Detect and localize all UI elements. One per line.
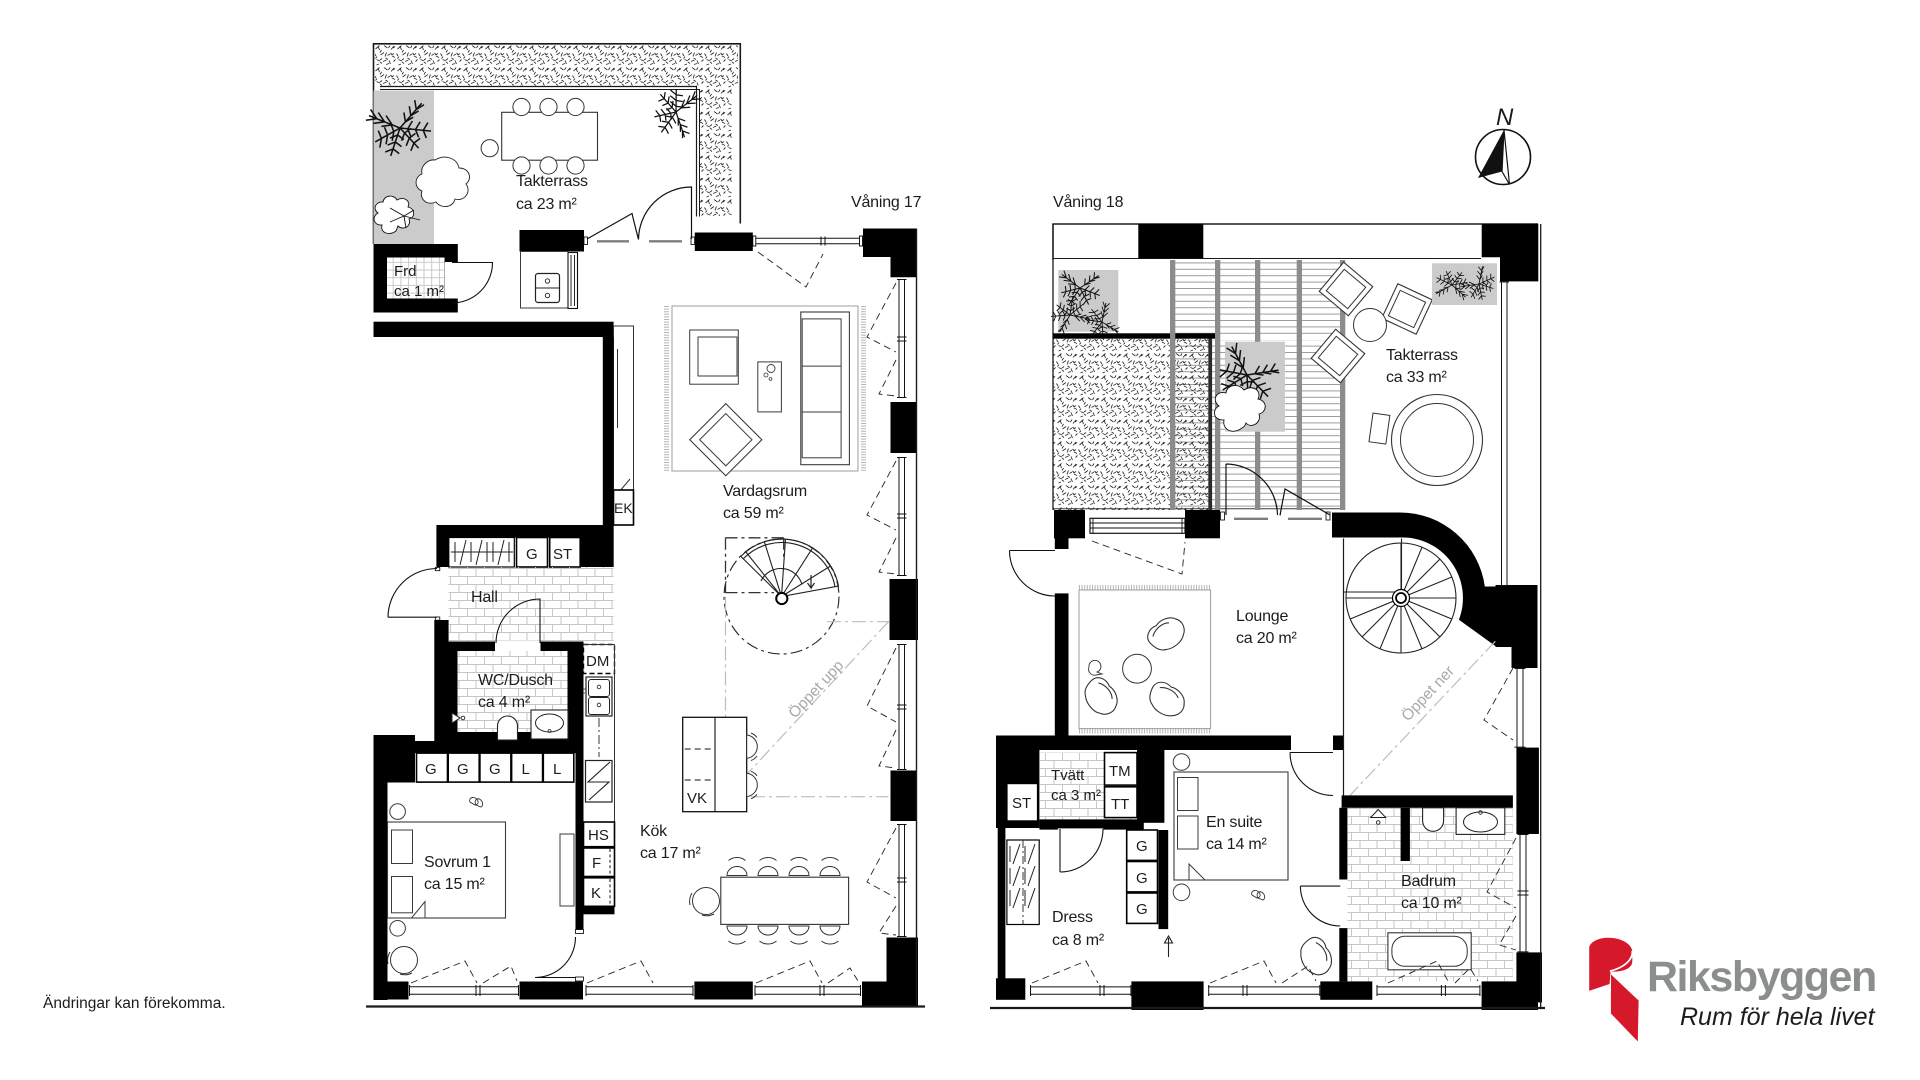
svg-text:Dress: Dress	[1052, 909, 1093, 926]
svg-text:L: L	[553, 761, 561, 778]
svg-text:Tvätt: Tvätt	[1051, 767, 1085, 784]
svg-text:EK: EK	[614, 500, 633, 516]
svg-text:ca 15 m²: ca 15 m²	[424, 876, 486, 893]
svg-text:K: K	[591, 885, 601, 902]
svg-text:Hall: Hall	[471, 589, 498, 606]
svg-text:Våning 17: Våning 17	[851, 193, 922, 211]
svg-text:G: G	[489, 761, 501, 778]
svg-text:Rum för hela livet: Rum för hela livet	[1680, 1003, 1876, 1031]
svg-text:ca 1 m²: ca 1 m²	[394, 283, 444, 300]
svg-text:Takterrass: Takterrass	[1386, 347, 1458, 364]
svg-text:ca 3 m²: ca 3 m²	[1051, 787, 1101, 804]
svg-text:TT: TT	[1111, 796, 1129, 813]
svg-text:ca 4 m²: ca 4 m²	[478, 694, 531, 711]
svg-text:G: G	[1136, 901, 1148, 918]
svg-text:N: N	[1496, 104, 1514, 131]
svg-text:ca 59 m²: ca 59 m²	[723, 505, 785, 522]
svg-text:WC/Dusch: WC/Dusch	[478, 672, 553, 689]
svg-text:HS: HS	[588, 827, 609, 844]
svg-text:VK: VK	[687, 790, 707, 807]
svg-text:Badrum: Badrum	[1401, 873, 1456, 890]
svg-text:ca 20 m²: ca 20 m²	[1236, 630, 1298, 647]
svg-text:G: G	[457, 761, 469, 778]
svg-text:F: F	[592, 855, 601, 872]
svg-text:Våning 18: Våning 18	[1053, 193, 1124, 211]
svg-text:ca 14 m²: ca 14 m²	[1206, 836, 1268, 853]
svg-text:ca 17 m²: ca 17 m²	[640, 845, 702, 862]
svg-text:G: G	[425, 761, 437, 778]
svg-text:ca 23 m²: ca 23 m²	[516, 196, 578, 213]
svg-text:L: L	[522, 761, 530, 778]
svg-text:Takterrass: Takterrass	[516, 173, 588, 190]
svg-text:Sovrum 1: Sovrum 1	[424, 854, 491, 871]
svg-text:Frd: Frd	[394, 263, 417, 280]
svg-text:Riksbyggen: Riksbyggen	[1647, 953, 1876, 1001]
svg-text:Ändringar kan förekomma.: Ändringar kan förekomma.	[43, 995, 226, 1012]
svg-text:Lounge: Lounge	[1236, 608, 1288, 625]
svg-text:G: G	[1136, 870, 1148, 887]
svg-text:G: G	[1136, 838, 1148, 855]
svg-text:G: G	[526, 546, 538, 563]
svg-text:TM: TM	[1109, 763, 1131, 780]
svg-text:ST: ST	[1012, 795, 1031, 812]
svg-text:Kök: Kök	[640, 823, 668, 840]
svg-text:ca 33 m²: ca 33 m²	[1386, 369, 1448, 386]
svg-text:Vardagsrum: Vardagsrum	[723, 483, 807, 500]
svg-text:En suite: En suite	[1206, 814, 1263, 831]
svg-text:DM: DM	[586, 653, 609, 670]
svg-text:ca 10 m²: ca 10 m²	[1401, 895, 1463, 912]
svg-text:ST: ST	[553, 546, 572, 563]
svg-text:ca 8 m²: ca 8 m²	[1052, 932, 1105, 949]
